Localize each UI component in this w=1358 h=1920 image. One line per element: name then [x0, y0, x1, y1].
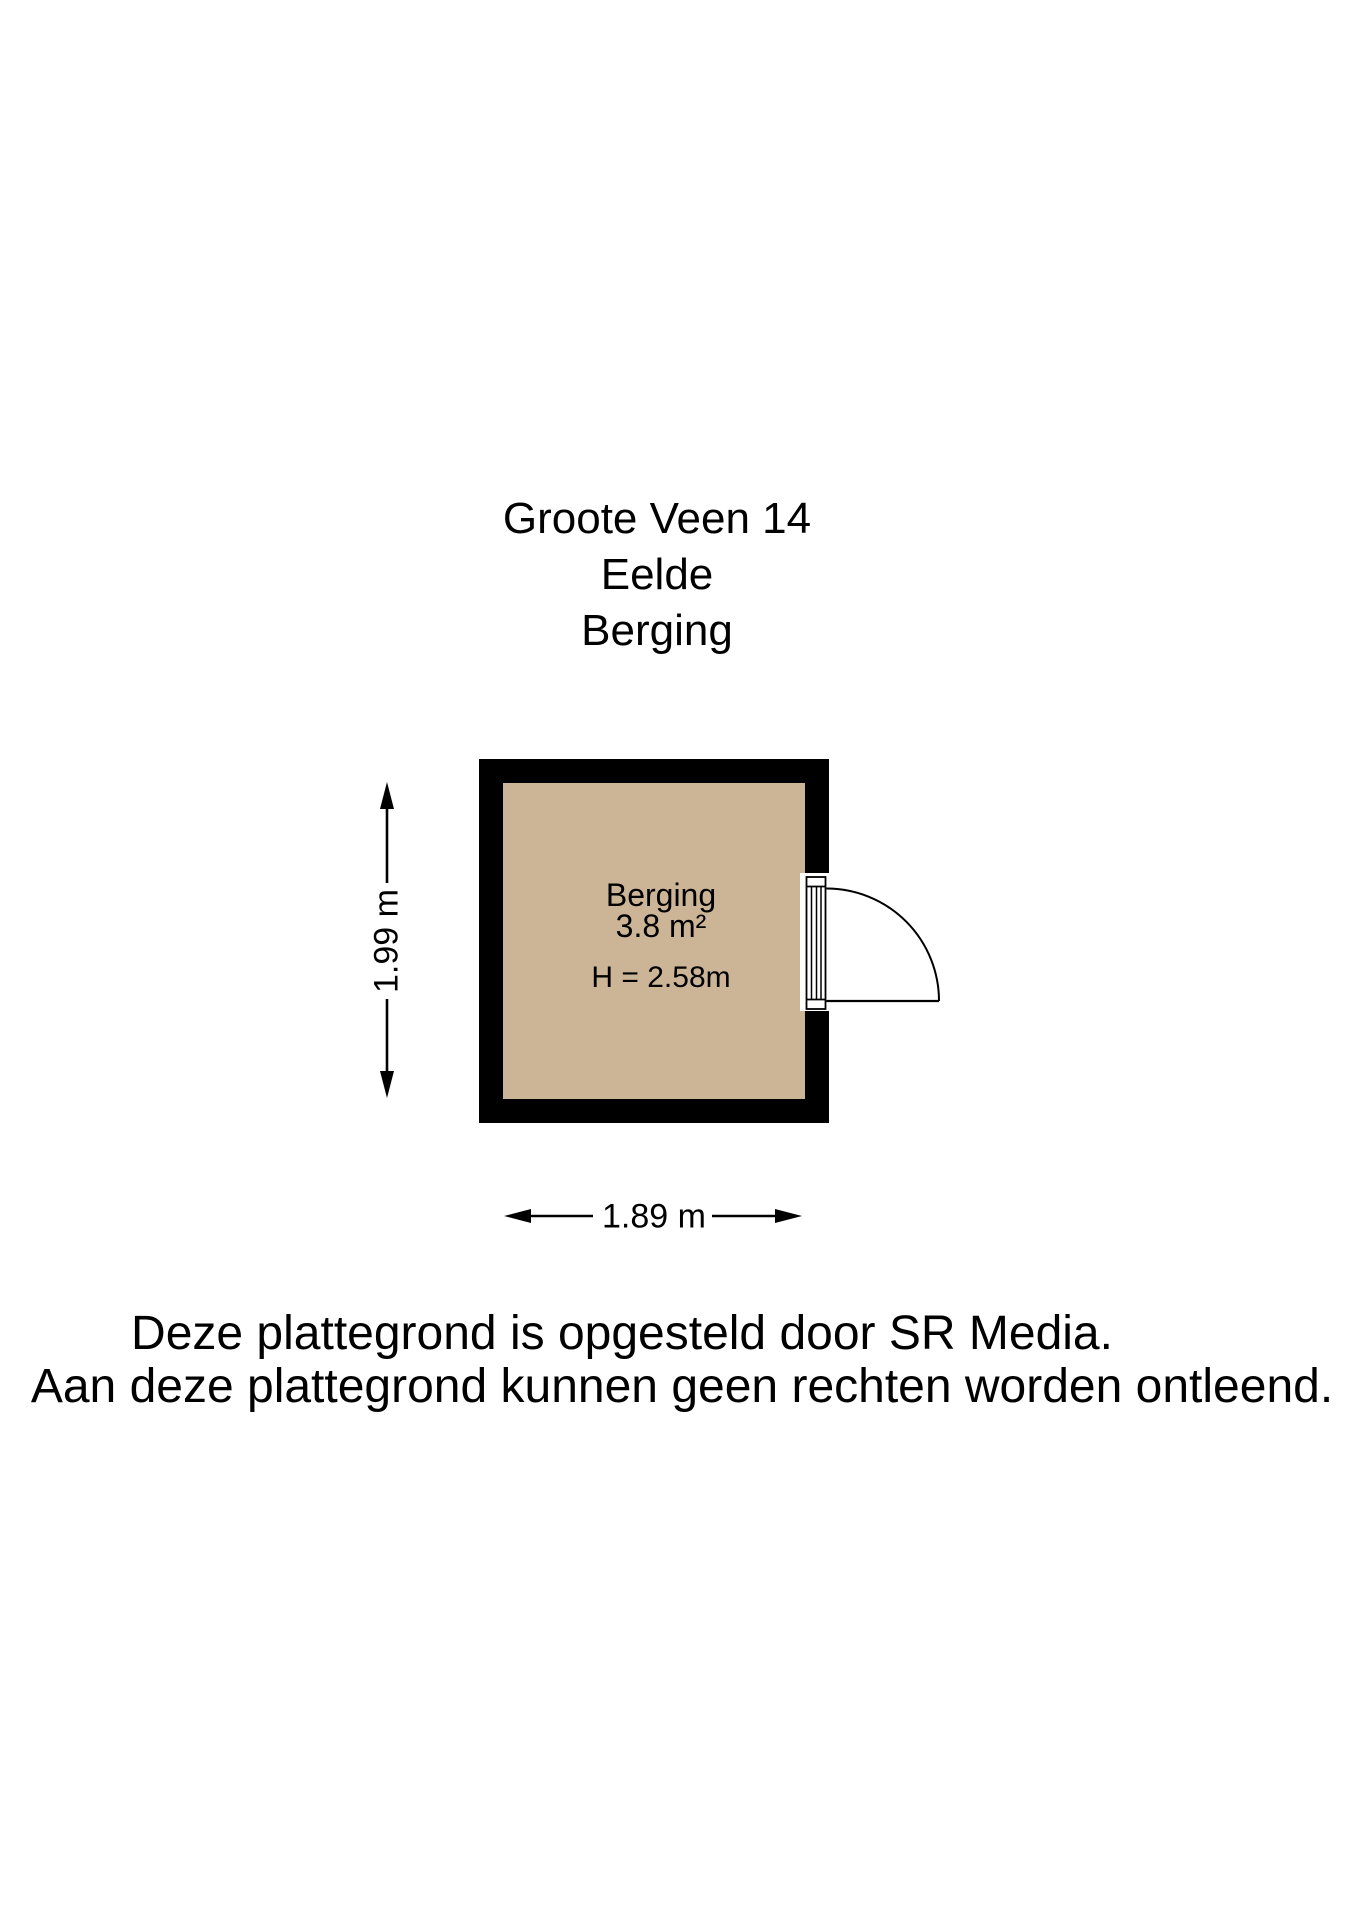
arrow-left-icon [504, 1209, 531, 1223]
room-label: Berging 3.8 m² H = 2.58m [591, 880, 730, 993]
title-city-line: Eelde [503, 547, 811, 603]
disclaimer-line-2: Aan deze plattegrond kunnen geen rechten… [31, 1359, 1333, 1415]
arrow-up-icon [380, 782, 394, 809]
room-name: Berging [591, 880, 730, 911]
door-swing-icon [827, 889, 940, 1002]
door-opening [800, 873, 831, 1011]
door-swing-arc [827, 889, 940, 1002]
arrow-down-icon [380, 1071, 394, 1098]
title-address-line: Groote Veen 14 [503, 491, 811, 547]
floorplan-title: Groote Veen 14 Eelde Berging [503, 491, 811, 659]
room-ceiling-height: H = 2.58m [591, 963, 730, 993]
disclaimer-line-1: Deze plattegrond is opgesteld door SR Me… [131, 1306, 1113, 1362]
horizontal-dimension-label: 1.89 m [602, 1198, 706, 1237]
vertical-dimension-label: 1.99 m [368, 889, 407, 993]
arrow-right-icon [775, 1209, 802, 1223]
page: Groote Veen 14 Eelde Berging Berging 3.8… [0, 0, 1358, 1920]
title-room-type-line: Berging [503, 603, 811, 659]
room-area: 3.8 m² [591, 911, 730, 942]
